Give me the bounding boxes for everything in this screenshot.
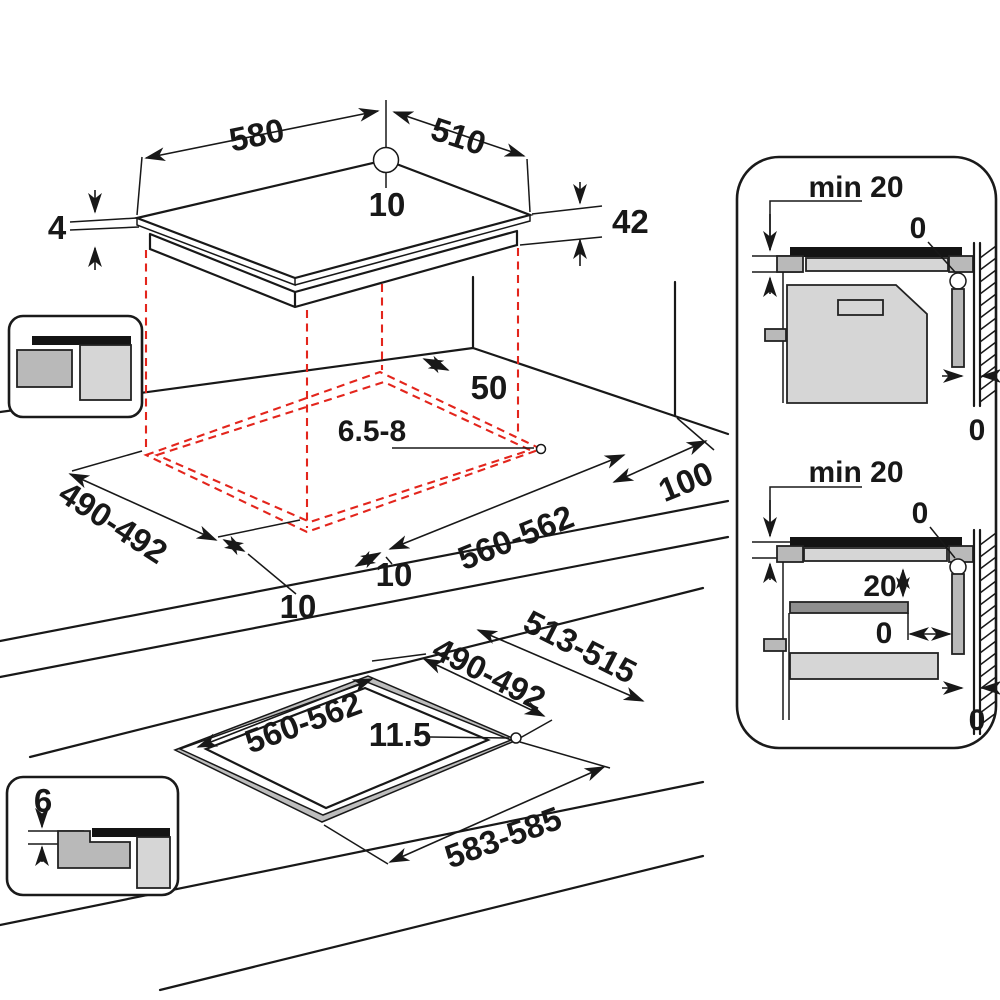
- surface-mount-glass-bar: [32, 336, 131, 345]
- fixing-hole-circle: [537, 445, 546, 454]
- oven-vent: [838, 300, 883, 315]
- min-clearance-label-top: min 20: [808, 171, 903, 204]
- dim-overhang-side: 10: [280, 588, 317, 625]
- worktop-cutout-view: 50 6.5-8 100 560-562 490-492 10 10: [0, 248, 728, 677]
- dim-line-overhang-side: [224, 540, 244, 551]
- hob-isometric-view: 580 510 10 4 42: [48, 100, 649, 307]
- surface-mount-worktop: [80, 345, 131, 400]
- seal-gap-label-b: 0: [912, 497, 929, 530]
- worktop-section-b: [804, 548, 947, 561]
- seal-circle-a: [950, 273, 966, 289]
- dim-line-rear-clearance: [424, 359, 448, 370]
- wall-gap-label-a: 0: [969, 414, 986, 447]
- ext-cutout-depth-2: [218, 520, 300, 537]
- hob-installation-diagram: 50 6.5-8 100 560-562 490-492 10 10: [0, 0, 1000, 1000]
- dim-flush-outer-width: 583-585: [440, 799, 566, 875]
- worktop-section-a: [806, 258, 948, 271]
- corner-radius-circle: [511, 733, 521, 743]
- drawer-body: [790, 653, 938, 679]
- side-views-panel: min 20 0: [737, 157, 996, 748]
- dim-side-clearance: 100: [653, 454, 718, 509]
- rear-strip-a: [952, 289, 964, 367]
- worktop-back-right-edge: [473, 348, 728, 434]
- dim-cutout-width: 560-562: [453, 498, 579, 578]
- dim-rear-clearance: 50: [471, 369, 508, 406]
- cabinet-tab-a: [765, 329, 786, 341]
- flush-worktop: [137, 837, 170, 888]
- min-clearance-label-bottom: min 20: [808, 456, 903, 489]
- cabinet-tab-b: [764, 639, 786, 651]
- seal-circle-b: [950, 559, 966, 575]
- rear-strip-b: [952, 574, 964, 654]
- ext-glass-1: [70, 218, 137, 222]
- surface-mount-inset: [9, 316, 142, 417]
- dim-recess-depth: 6: [34, 782, 52, 819]
- corner-radius-leader: [430, 737, 509, 738]
- left-bracket-b: [777, 546, 803, 562]
- ext-glass-2: [70, 227, 139, 230]
- ext-flush-depth-2: [520, 720, 552, 738]
- shelf-gap-label: 20: [863, 570, 896, 603]
- dim-depth: 510: [427, 110, 491, 162]
- shelf-wall-gap-label: 0: [876, 617, 893, 650]
- ext-flush-outer-width-2: [520, 742, 610, 768]
- wall-gap-label-b: 0: [969, 704, 986, 737]
- dim-width: 580: [226, 111, 288, 159]
- dim-body-height: 42: [612, 203, 649, 240]
- hob-glass-section-b: [790, 537, 962, 547]
- dim-rear-center-gap: 10: [369, 186, 406, 223]
- dim-cutout-depth: 490-492: [52, 474, 174, 571]
- ext-width-left: [137, 157, 142, 215]
- dim-fixing-hole: 6.5-8: [338, 415, 406, 448]
- dim-flush-width: 560-562: [240, 684, 366, 760]
- ext-height-1: [532, 206, 602, 214]
- dim-corner-radius: 11.5: [369, 716, 431, 753]
- left-bracket-a: [777, 256, 803, 272]
- ext-depth-right: [527, 159, 530, 212]
- dim-overhang-front: 10: [376, 556, 413, 593]
- ext-cutout-depth-1: [72, 451, 142, 471]
- flush-mount-inset: 6: [7, 777, 178, 895]
- seal-gap-label-a: 0: [910, 212, 927, 245]
- dim-glass-thickness: 4: [48, 209, 67, 246]
- ext-height-2: [520, 237, 602, 245]
- flush-glass-bar: [92, 828, 170, 837]
- surface-mount-hob-body: [17, 350, 72, 387]
- hob-glass-top: [137, 160, 530, 278]
- rear-center-circle: [374, 148, 399, 173]
- diagram-canvas: 50 6.5-8 100 560-562 490-492 10 10: [0, 0, 1000, 1000]
- shelf-bar: [790, 602, 908, 613]
